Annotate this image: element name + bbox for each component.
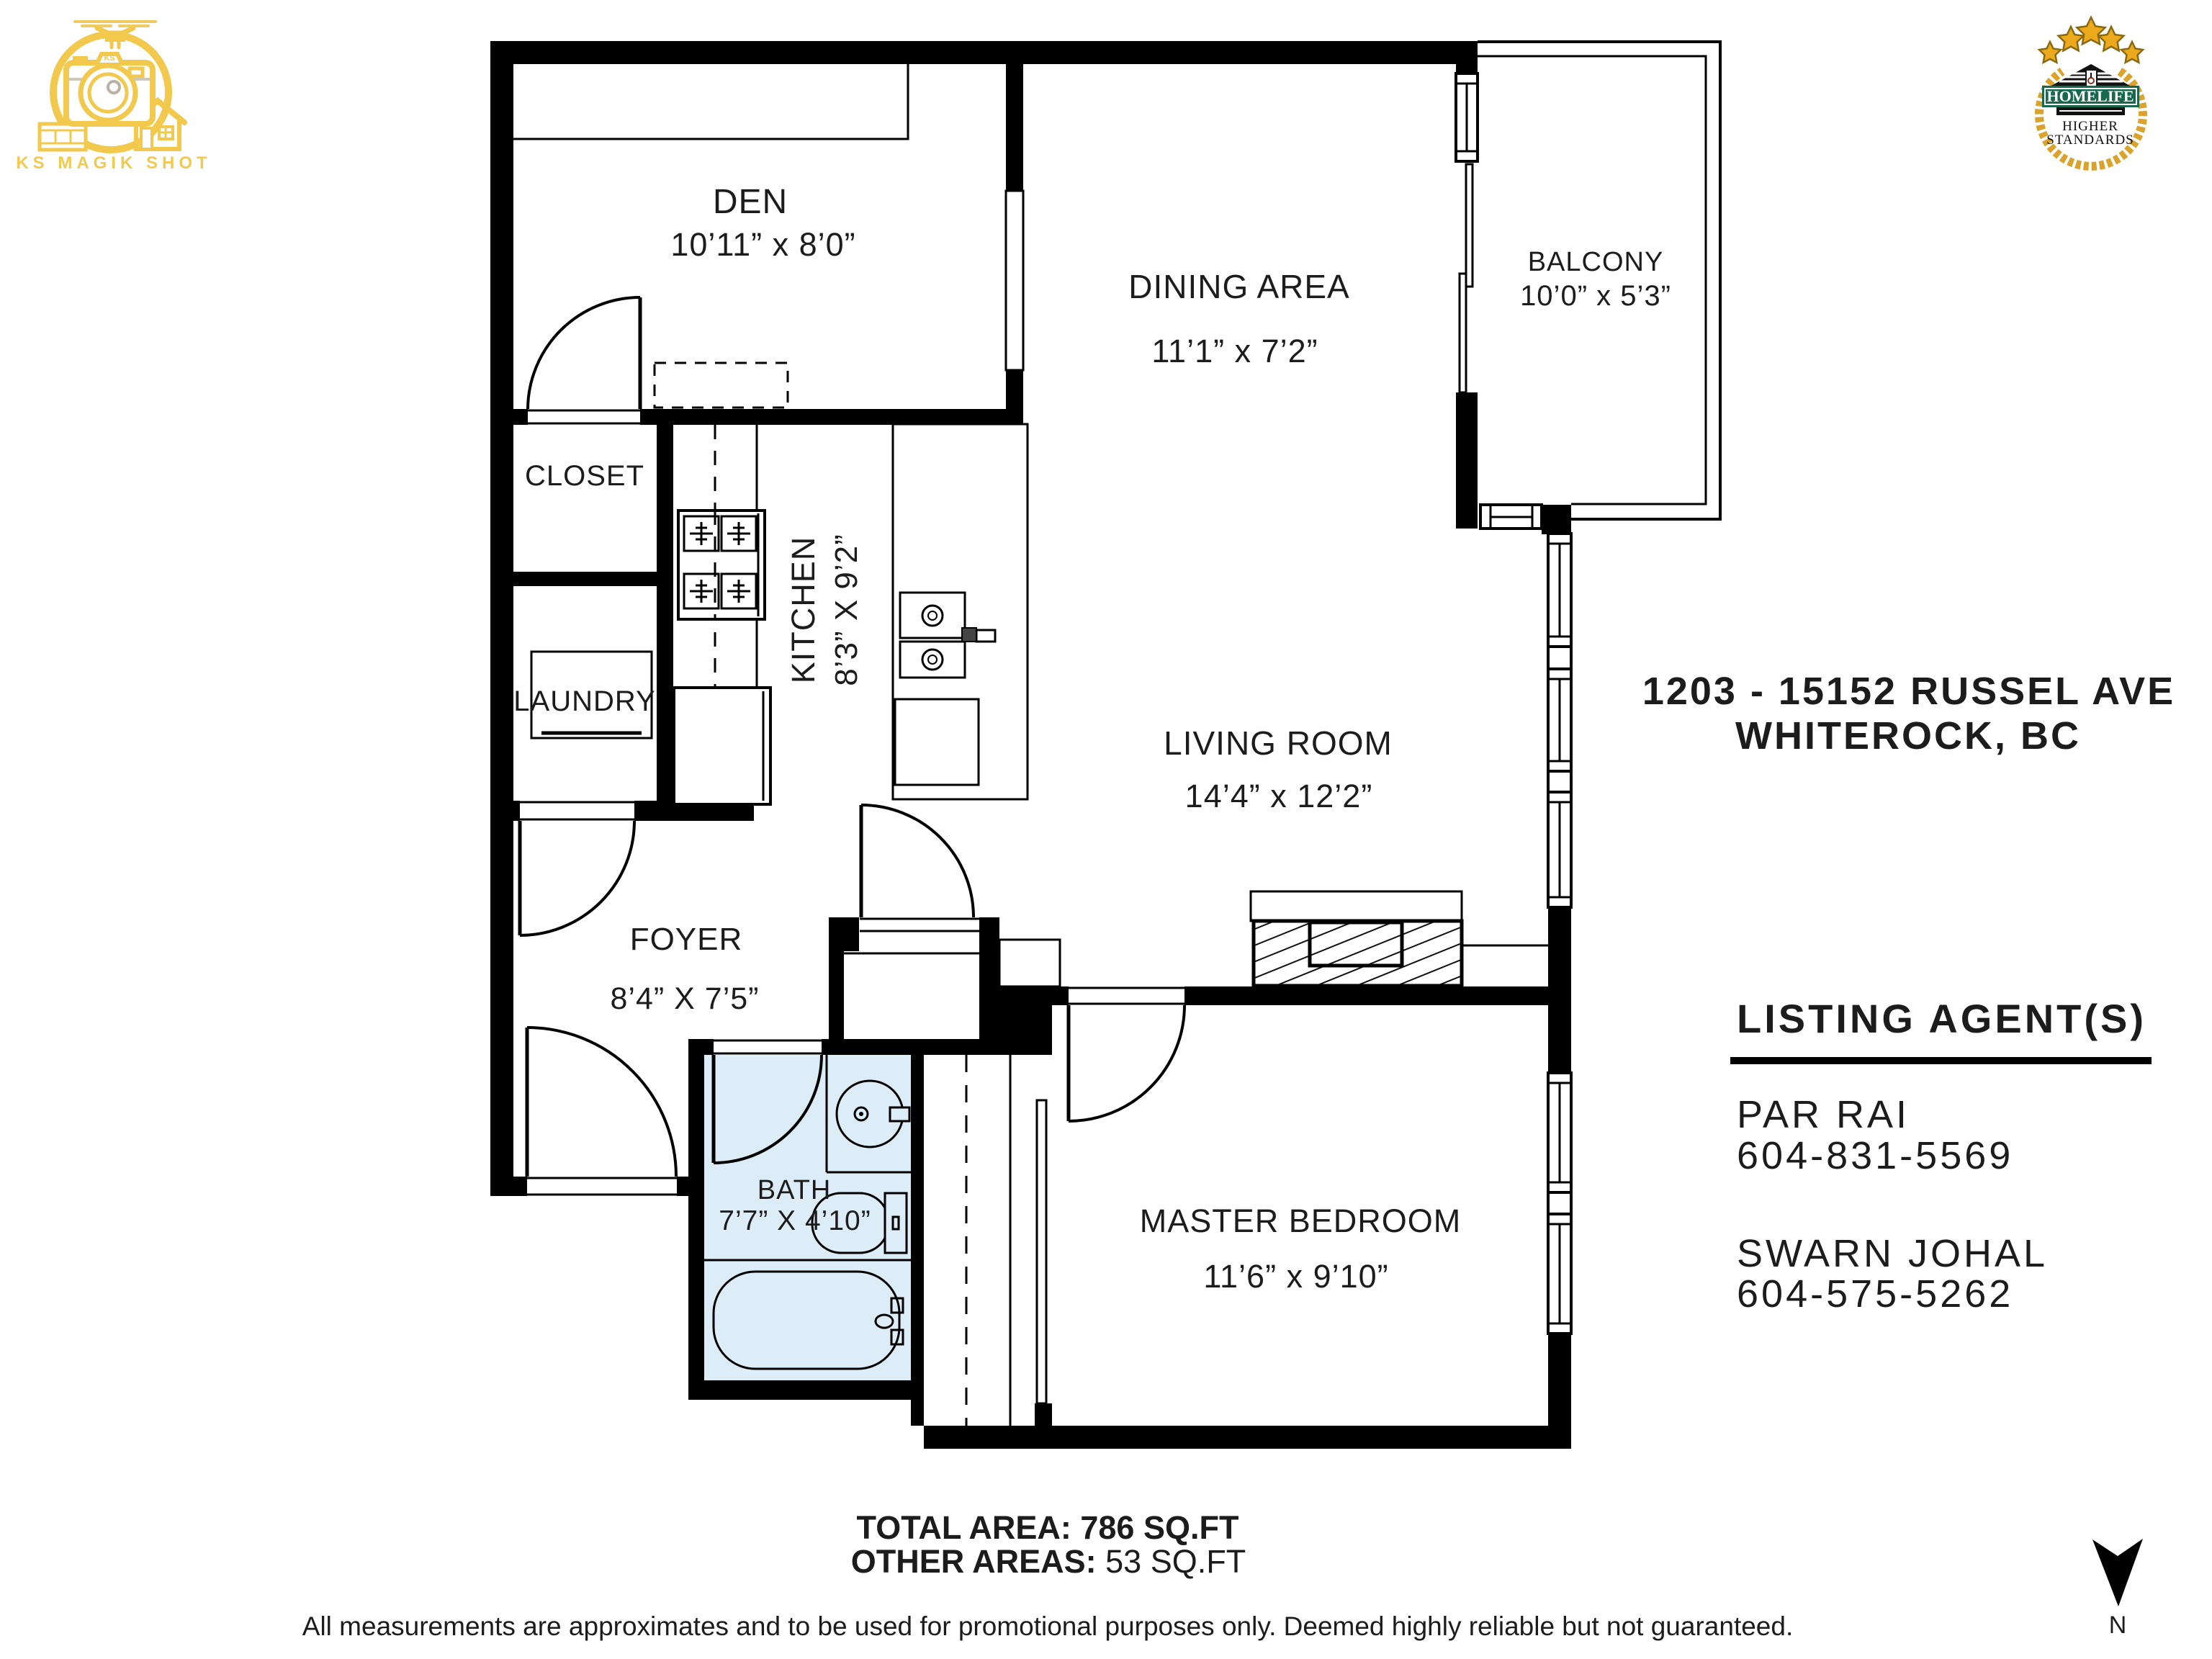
svg-text:DINING AREA: DINING AREA [1128,268,1350,305]
svg-text:DEN: DEN [713,183,788,221]
svg-text:HIGHER: HIGHER [2062,119,2118,134]
svg-text:604-575-5262: 604-575-5262 [1737,1272,2013,1316]
svg-text:KS MAGIK SHOT: KS MAGIK SHOT [16,153,211,173]
svg-text:604-831-5569: 604-831-5569 [1737,1134,2013,1177]
svg-text:N: N [2109,1611,2127,1639]
svg-text:HOMELIFE: HOMELIFE [2046,87,2134,105]
svg-text:8’3” X 9’2”: 8’3” X 9’2” [829,534,864,686]
svg-text:OTHER AREAS: 53 SQ.FT: OTHER AREAS: 53 SQ.FT [851,1543,1246,1580]
svg-text:BATH: BATH [757,1175,832,1205]
svg-text:CLOSET: CLOSET [525,460,644,492]
svg-text:FOYER: FOYER [630,922,743,957]
svg-text:7’7” X 4’10”: 7’7” X 4’10” [719,1205,871,1236]
svg-text:TOTAL AREA: 786 SQ.FT: TOTAL AREA: 786 SQ.FT [857,1509,1239,1546]
svg-text:BALCONY: BALCONY [1528,247,1664,277]
svg-text:1203 - 15152 RUSSEL AVE: 1203 - 15152 RUSSEL AVE [1642,670,2175,713]
svg-text:11’6” x 9’10”: 11’6” x 9’10” [1203,1258,1388,1295]
svg-text:KS: KS [104,54,114,63]
svg-text:PAR RAI: PAR RAI [1737,1093,1910,1136]
svg-text:LISTING AGENT(S): LISTING AGENT(S) [1737,996,2146,1041]
svg-text:All measurements are approxima: All measurements are approximates and to… [302,1611,1793,1641]
svg-text:14’4” x 12’2”: 14’4” x 12’2” [1185,778,1373,814]
svg-text:STANDARDS: STANDARDS [2046,132,2134,148]
svg-text:LIVING ROOM: LIVING ROOM [1164,724,1393,762]
svg-text:MASTER BEDROOM: MASTER BEDROOM [1140,1202,1462,1239]
svg-text:KITCHEN: KITCHEN [785,536,822,684]
svg-text:10’11” x 8’0”: 10’11” x 8’0” [670,226,855,263]
svg-text:10’0” x 5’3”: 10’0” x 5’3” [1520,280,1671,312]
svg-text:WHITEROCK, BC: WHITEROCK, BC [1735,714,2081,757]
svg-text:11’1” x 7’2”: 11’1” x 7’2” [1151,333,1318,369]
svg-text:8’4” X 7’5”: 8’4” X 7’5” [611,981,760,1016]
svg-text:SWARN JOHAL: SWARN JOHAL [1737,1232,2048,1275]
svg-text:LAUNDRY: LAUNDRY [513,685,655,717]
